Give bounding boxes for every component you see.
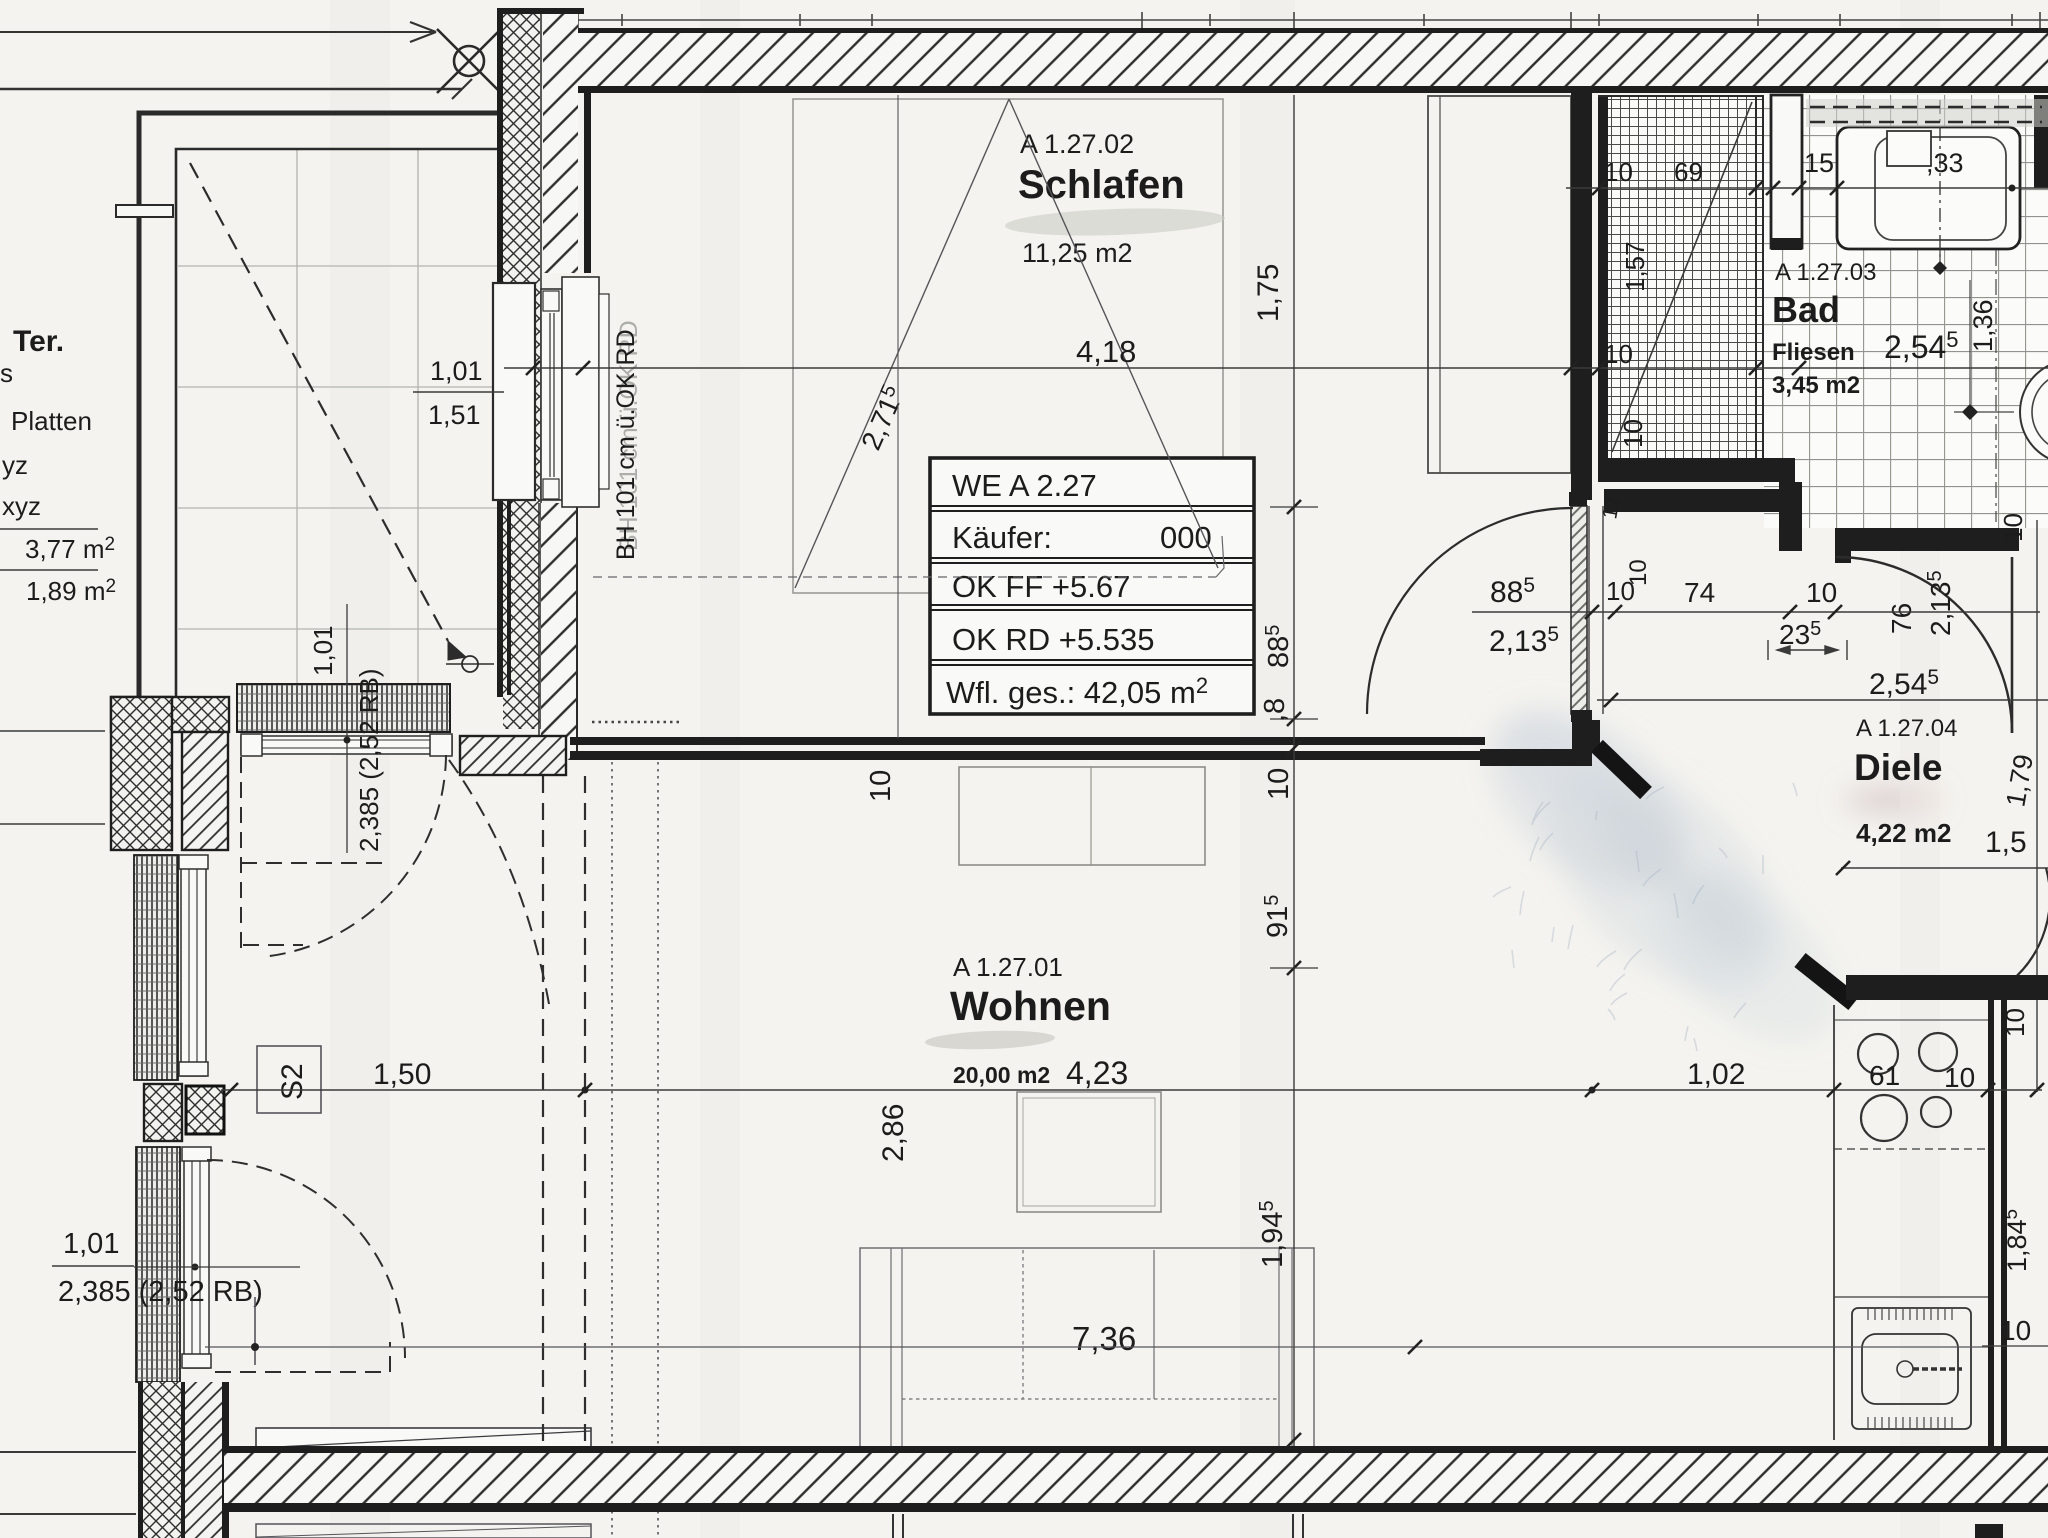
svg-text:Ter.: Ter. (13, 325, 64, 358)
svg-text:Schlafen: Schlafen (1018, 163, 1185, 207)
svg-text:1,75: 1,75 (1252, 264, 1285, 322)
svg-text:10: 10 (865, 770, 897, 802)
svg-text:1,5: 1,5 (1985, 826, 2027, 859)
svg-text:20,00 m2: 20,00 m2 (953, 1062, 1050, 1088)
svg-text:10: 10 (1998, 513, 2028, 542)
svg-text:1,89 m2: 1,89 m2 (26, 576, 116, 606)
svg-text:yz: yz (2, 450, 28, 480)
svg-text:S2: S2 (276, 1063, 309, 1100)
svg-text:10: 10 (2000, 1008, 2030, 1037)
svg-text:1,51: 1,51 (428, 400, 481, 430)
svg-text:Diele: Diele (1854, 747, 1942, 788)
svg-text:A 1.27.02: A 1.27.02 (1020, 129, 1134, 159)
svg-text:4,22 m2: 4,22 m2 (1856, 818, 1951, 848)
svg-text:Käufer:: Käufer: (952, 520, 1052, 555)
svg-text:10: 10 (1806, 577, 1837, 608)
svg-text:OK FF +5.67: OK FF +5.67 (952, 569, 1130, 604)
svg-text:2,86: 2,86 (877, 1104, 910, 1162)
svg-text:xyz: xyz (2, 491, 41, 521)
svg-text:4,18: 4,18 (1076, 334, 1136, 369)
svg-text:1,57: 1,57 (1620, 241, 1650, 292)
svg-text:3,77 m2: 3,77 m2 (25, 534, 115, 564)
svg-text:10: 10 (1625, 559, 1652, 586)
svg-text:10: 10 (1618, 419, 1648, 448)
svg-text:10: 10 (2000, 1315, 2031, 1346)
svg-text:2,385 (2,52 RB): 2,385 (2,52 RB) (58, 1276, 263, 1308)
svg-text:1,01: 1,01 (430, 356, 483, 386)
svg-text:1,36: 1,36 (1968, 299, 1998, 352)
svg-text:4,23: 4,23 (1066, 1055, 1128, 1091)
svg-text:Fliesen: Fliesen (1772, 339, 1855, 366)
svg-text:2,385 (2,52 RB): 2,385 (2,52 RB) (354, 668, 384, 852)
svg-text:WE A 2.27: WE A 2.27 (952, 468, 1097, 503)
svg-text:1,01: 1,01 (63, 1228, 119, 1260)
svg-text:A 1.27.01: A 1.27.01 (953, 952, 1063, 982)
svg-text:74: 74 (1684, 577, 1715, 608)
svg-text:1,01: 1,01 (308, 625, 338, 676)
svg-text:1,50: 1,50 (373, 1058, 431, 1091)
svg-text:BH 101 cm ü.OK RD: BH 101 cm ü.OK RD (615, 320, 643, 551)
svg-text:3,45 m2: 3,45 m2 (1772, 372, 1860, 399)
svg-text:Bad: Bad (1772, 289, 1840, 330)
svg-text:Platten: Platten (11, 406, 92, 436)
svg-text:10: 10 (1604, 339, 1633, 369)
svg-text:17: 17 (1598, 494, 1625, 521)
svg-text:s: s (0, 358, 13, 388)
svg-text:Wohnen: Wohnen (950, 983, 1111, 1029)
svg-text:1,02: 1,02 (1687, 1058, 1745, 1091)
svg-text:69: 69 (1674, 157, 1703, 187)
svg-text:7,36: 7,36 (1072, 1320, 1136, 1357)
svg-text:10: 10 (1604, 157, 1633, 187)
svg-text:A 1.27.03: A 1.27.03 (1775, 259, 1876, 286)
svg-text:61: 61 (1869, 1060, 1900, 1091)
svg-text:15: 15 (1804, 148, 1834, 178)
svg-text:,33: ,33 (1926, 148, 1964, 178)
svg-text:10: 10 (1944, 1062, 1975, 1093)
svg-text:10: 10 (1263, 768, 1295, 800)
svg-text:OK RD +5.535: OK RD +5.535 (952, 622, 1154, 657)
svg-text:Wfl. ges.: 42,05 m2: Wfl. ges.: 42,05 m2 (946, 673, 1208, 710)
svg-text:,8: ,8 (1259, 698, 1291, 722)
svg-text:76: 76 (1886, 603, 1917, 634)
svg-text:A 1.27.04: A 1.27.04 (1856, 715, 1957, 742)
